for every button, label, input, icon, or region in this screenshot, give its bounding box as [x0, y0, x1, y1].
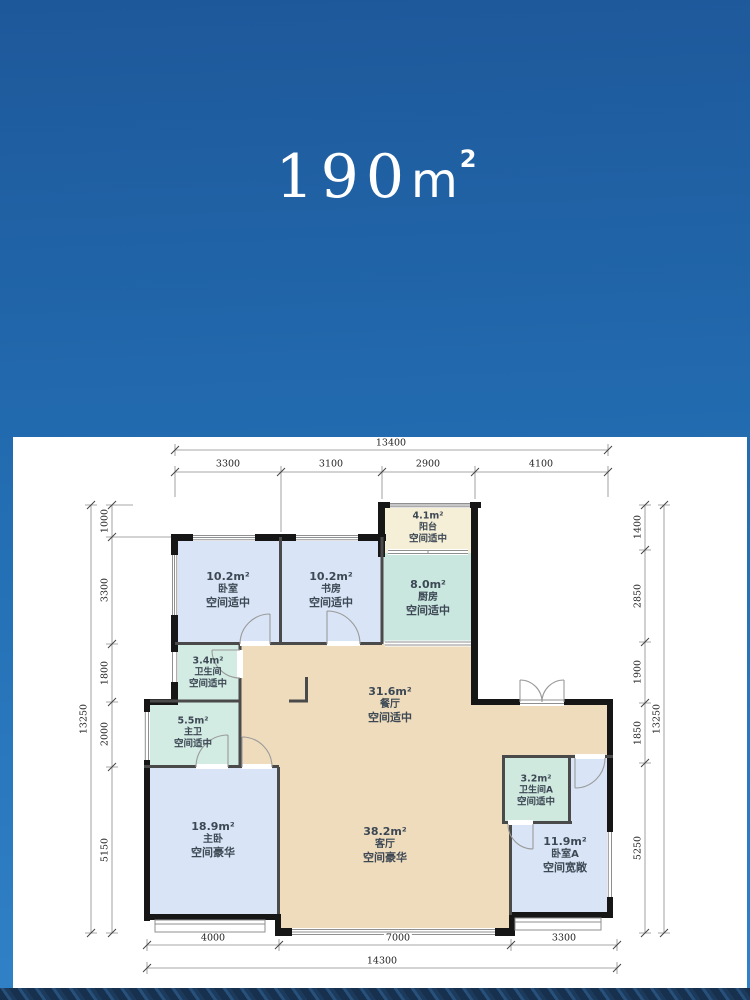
- dim-right-seg-3: 1850: [633, 719, 644, 747]
- dim-left-total: 13250: [79, 702, 90, 736]
- room-label-study: 10.2m² 书房 空间适中: [309, 570, 353, 610]
- dim-left-seg-1: 3300: [100, 576, 111, 604]
- dim-right-total: 13250: [652, 702, 663, 736]
- area-number: 190: [276, 142, 412, 212]
- dim-right-seg-2: 1900: [633, 658, 644, 686]
- area-unit: m: [411, 153, 458, 209]
- area-superscript: 2: [460, 145, 477, 173]
- dim-left-seg-4: 5150: [100, 836, 111, 864]
- dim-bottom-seg-0: 4000: [199, 933, 227, 944]
- dim-bottom-total: 14300: [365, 956, 399, 967]
- dim-left-seg-0: 1000: [100, 507, 111, 535]
- room-label-dining: 31.6m² 餐厅 空间适中: [368, 685, 412, 725]
- floorplan-panel: 10.2m² 卧室 空间适中 10.2m² 书房 空间适中 4.1m² 阳台 空…: [13, 437, 747, 988]
- room-label-balcony: 4.1m² 阳台 空间适中: [409, 511, 447, 546]
- dim-top-seg-3: 4100: [527, 459, 555, 470]
- dim-left-seg-2: 1800: [100, 659, 111, 687]
- room-label-kitchen: 8.0m² 厨房 空间适中: [406, 578, 450, 618]
- dim-bottom-seg-1: 7000: [384, 933, 412, 944]
- dim-top-seg-2: 2900: [414, 459, 442, 470]
- room-label-bath-a: 3.2m² 卫生间A 空间适中: [517, 774, 555, 809]
- dim-right-seg-1: 2850: [633, 582, 644, 610]
- room-label-bedroom: 10.2m² 卧室 空间适中: [206, 570, 250, 610]
- dim-top-total: 13400: [374, 438, 408, 449]
- area-title: 190m2: [0, 142, 750, 212]
- dim-left-seg-3: 2000: [100, 720, 111, 748]
- room-label-master-bedroom: 18.9m² 主卧 空间豪华: [191, 820, 235, 860]
- dim-bottom-seg-2: 3300: [550, 933, 578, 944]
- dim-top-seg-1: 3100: [317, 459, 345, 470]
- room-label-bath: 3.4m² 卫生间 空间适中: [189, 656, 227, 691]
- dim-right-seg-0: 1400: [633, 513, 644, 541]
- room-label-living: 38.2m² 客厅 空间豪华: [363, 825, 407, 865]
- dim-top-seg-0: 3300: [214, 459, 242, 470]
- city-photo-strip: [0, 988, 750, 1000]
- room-label-bedroom-a: 11.9m² 卧室A 空间宽敞: [543, 835, 587, 875]
- room-label-master-bath: 5.5m² 主卫 空间适中: [174, 716, 212, 751]
- dim-right-seg-4: 5250: [633, 834, 644, 862]
